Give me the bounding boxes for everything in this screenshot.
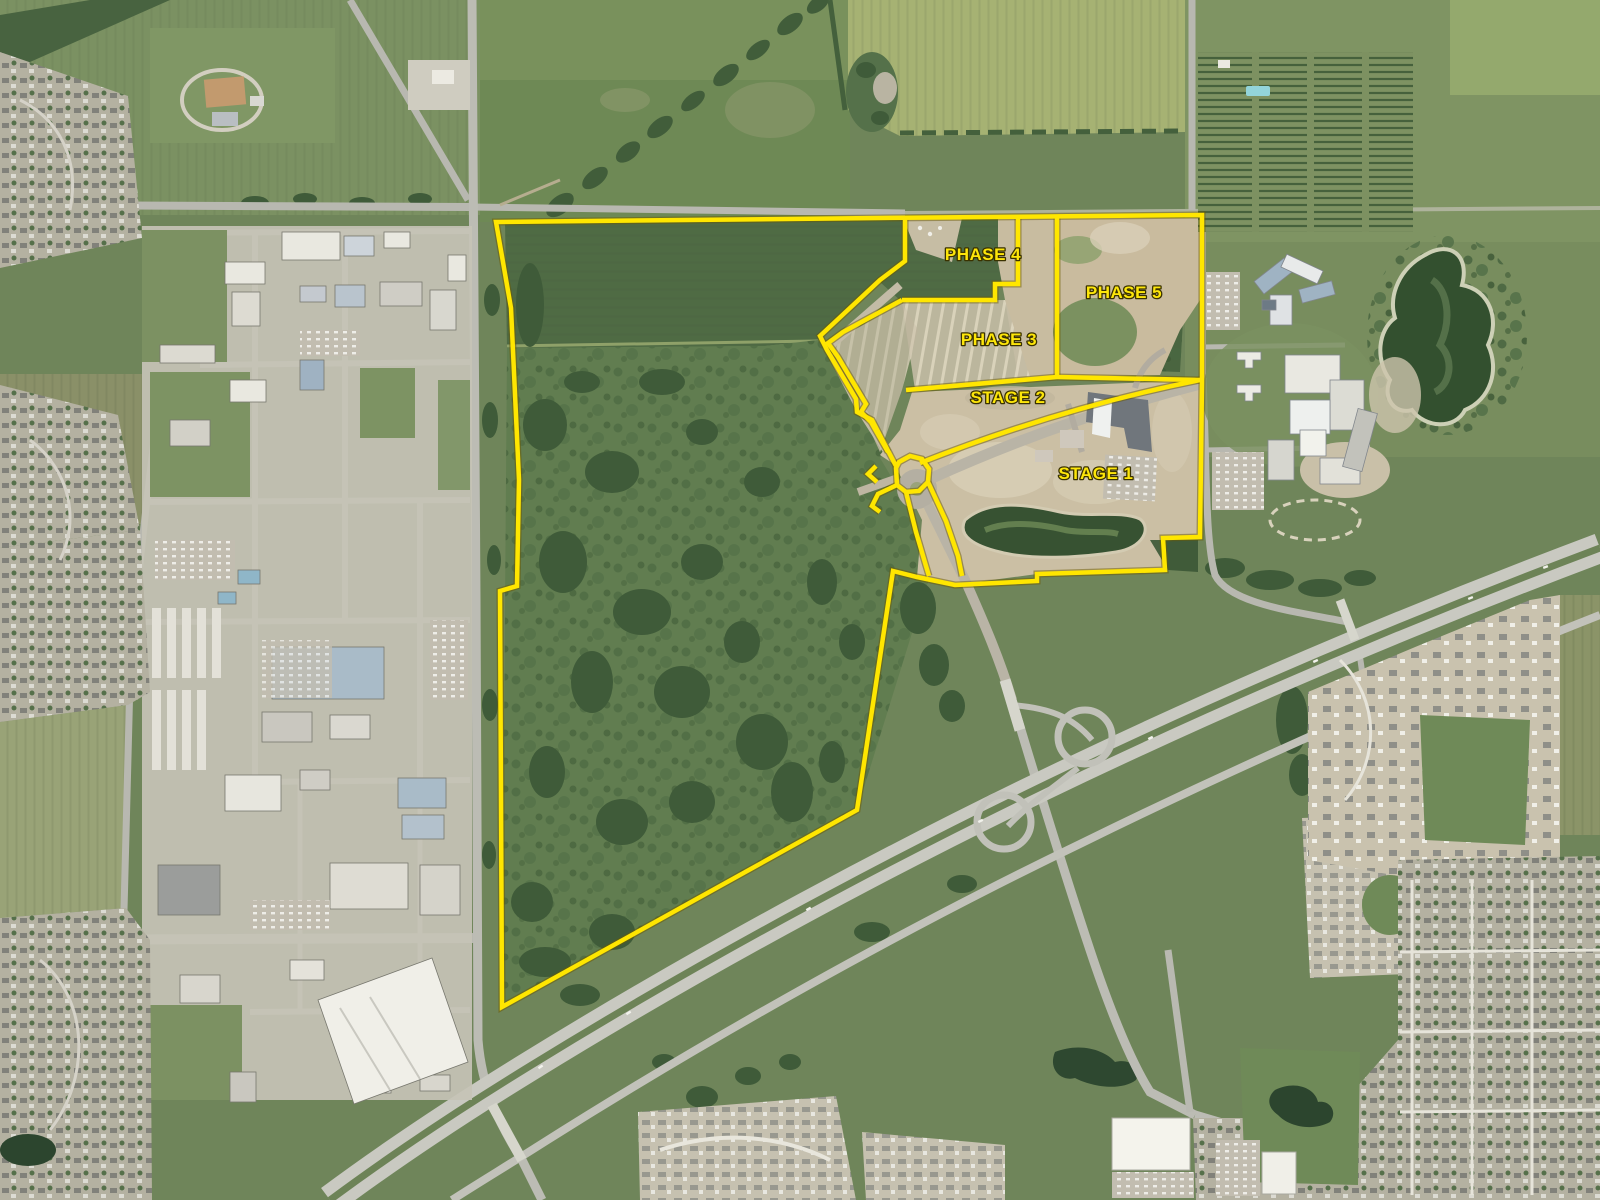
aerial-map-screenshot: PHASE 4PHASE 5PHASE 3STAGE 2STAGE 1 [0, 0, 1600, 1200]
satellite-map: PHASE 4PHASE 5PHASE 3STAGE 2STAGE 1 [0, 0, 1600, 1200]
region-label-phase-5: PHASE 5 [1086, 283, 1162, 302]
phase-5-south-edge [1057, 377, 1200, 380]
region-label-stage-1: STAGE 1 [1059, 464, 1134, 483]
tree-nursery [1198, 52, 1413, 232]
region-label-phase-3: PHASE 3 [961, 330, 1037, 349]
region-label-stage-2: STAGE 2 [971, 388, 1046, 407]
region-label-phase-4: PHASE 4 [945, 245, 1021, 264]
